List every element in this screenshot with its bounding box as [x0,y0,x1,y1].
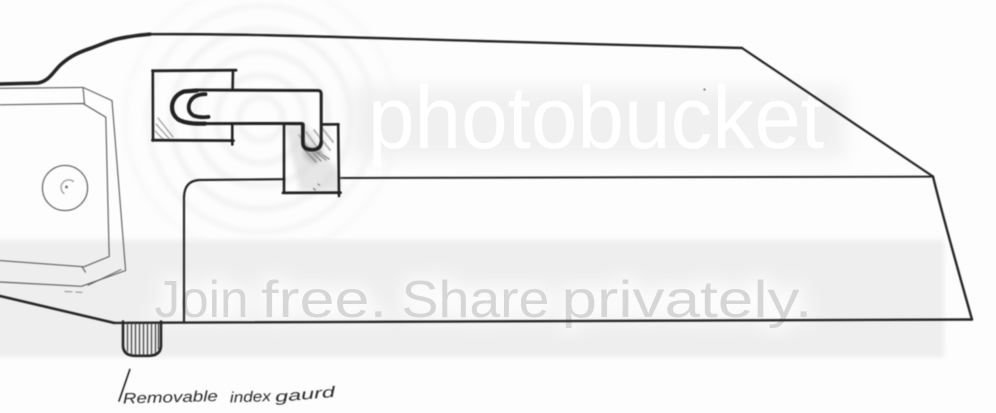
svg-text:free.: free. [261,271,387,329]
svg-text:index: index [230,388,272,406]
svg-text:photobucket: photobucket [368,68,824,167]
svg-text:Join: Join [155,271,249,329]
svg-text:Removable: Removable [123,388,218,407]
